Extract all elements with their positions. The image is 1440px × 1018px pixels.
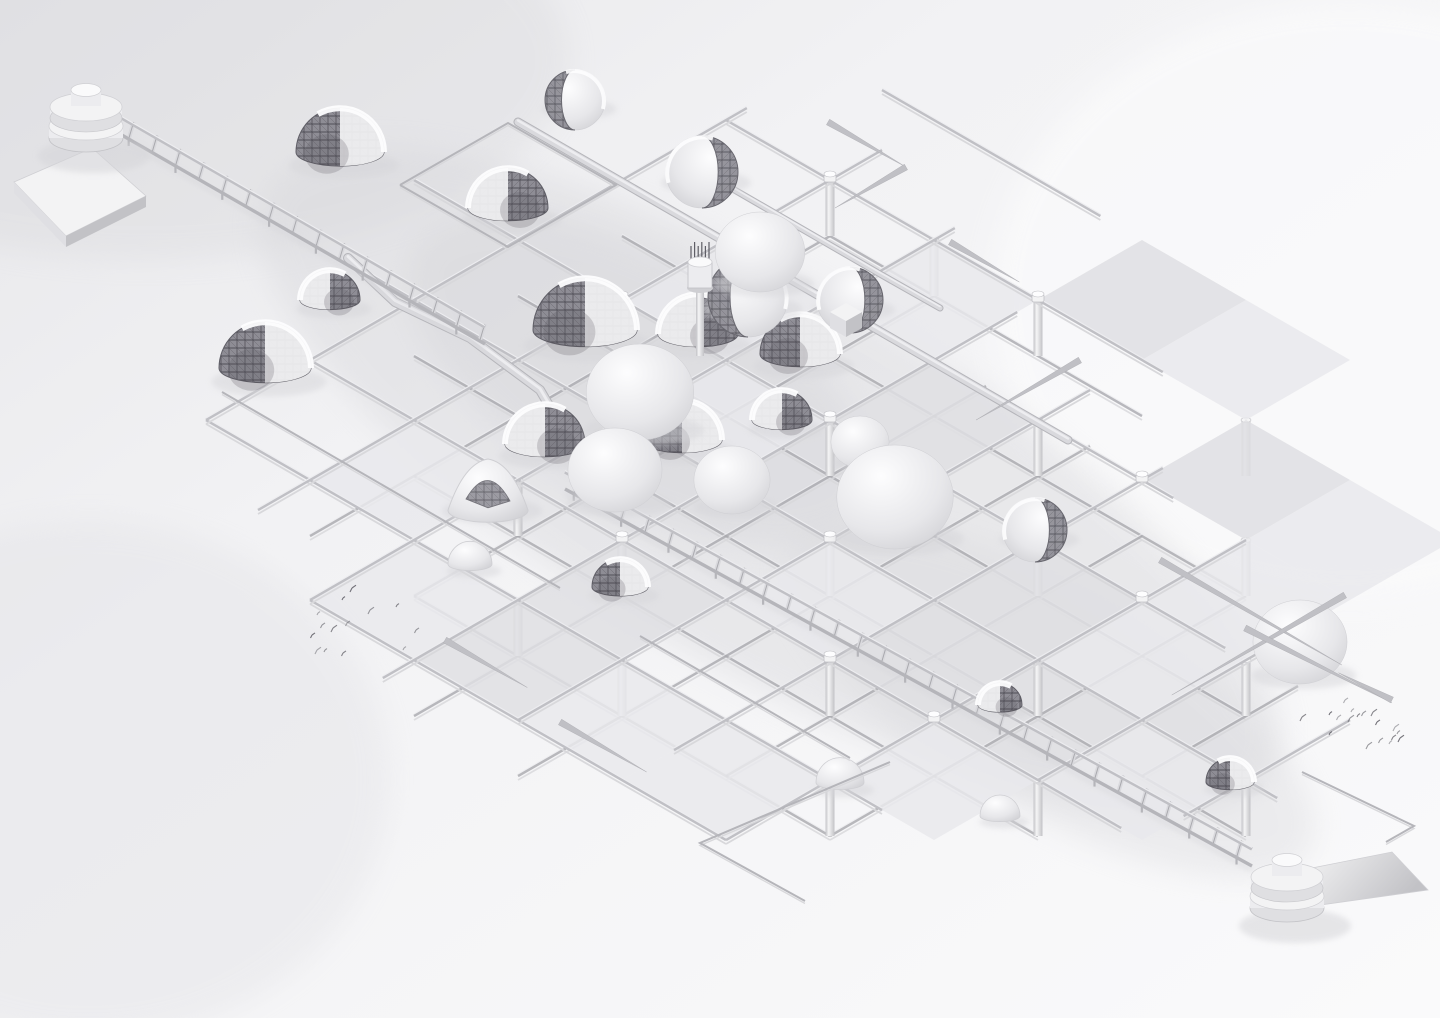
smooth-blob xyxy=(837,445,953,549)
post xyxy=(826,660,835,716)
wire-dome-shade xyxy=(776,409,806,436)
wire-sphere xyxy=(1003,498,1067,562)
node-puck-cap xyxy=(824,411,836,417)
turret-post xyxy=(696,286,704,356)
wire-dome-shade xyxy=(500,192,540,228)
smooth-blob xyxy=(715,212,805,292)
node-puck-cap xyxy=(824,531,836,537)
wire-dome-shade xyxy=(996,697,1018,717)
isometric-scene xyxy=(0,0,1440,1018)
wire-dome-shade xyxy=(598,576,626,601)
post xyxy=(1034,780,1043,836)
wire-dome-shade xyxy=(228,349,274,390)
node-puck-cap xyxy=(824,171,836,177)
wire-dome-shade xyxy=(1211,773,1235,795)
smooth-blob xyxy=(694,446,770,514)
wire-dome-shade xyxy=(768,338,808,374)
wire-dome-shade xyxy=(305,134,349,174)
post xyxy=(826,180,835,236)
node-puck-cap xyxy=(928,711,940,717)
wire-sphere xyxy=(545,70,605,130)
wire-dome-shade xyxy=(324,289,354,316)
render-stage: Monochrome isometric render of a modular… xyxy=(0,0,1440,1018)
smooth-blob xyxy=(586,344,694,440)
post xyxy=(1242,660,1251,716)
node-puck-cap xyxy=(824,651,836,657)
wire-dome-shade xyxy=(543,309,595,356)
wire-sphere xyxy=(666,136,738,208)
spool-cap xyxy=(71,84,101,97)
post xyxy=(1034,300,1043,356)
smooth-blob xyxy=(568,428,662,512)
node-puck-cap xyxy=(1032,291,1044,297)
turret-cap xyxy=(688,257,712,267)
spool-cap xyxy=(1272,854,1302,867)
node-puck-cap xyxy=(1136,471,1148,477)
post xyxy=(1034,660,1043,716)
node-puck-cap xyxy=(1136,591,1148,597)
node-puck-cap xyxy=(616,531,628,537)
